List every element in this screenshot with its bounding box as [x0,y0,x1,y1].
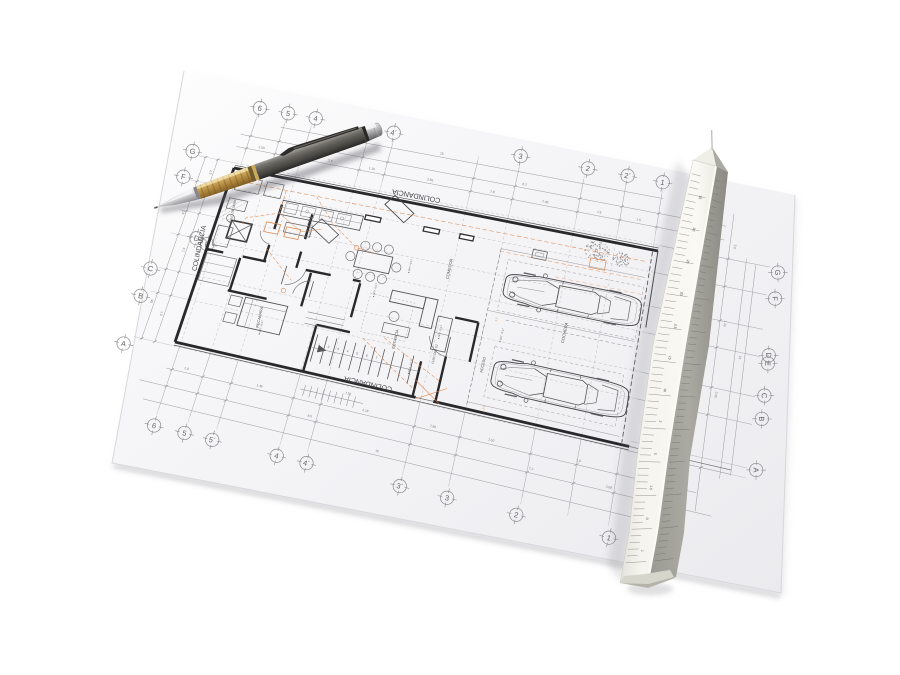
svg-text:G: G [773,270,782,276]
svg-text:10: 10 [663,388,668,392]
svg-text:A: A [751,467,760,472]
svg-text:C: C [760,393,769,399]
svg-text:F: F [770,296,779,301]
svg-text:E: E [763,361,772,366]
svg-text:B: B [757,416,766,421]
svg-text:15: 15 [667,356,672,360]
svg-text:A: A [120,339,127,349]
svg-text:1.5: 1.5 [649,485,653,490]
